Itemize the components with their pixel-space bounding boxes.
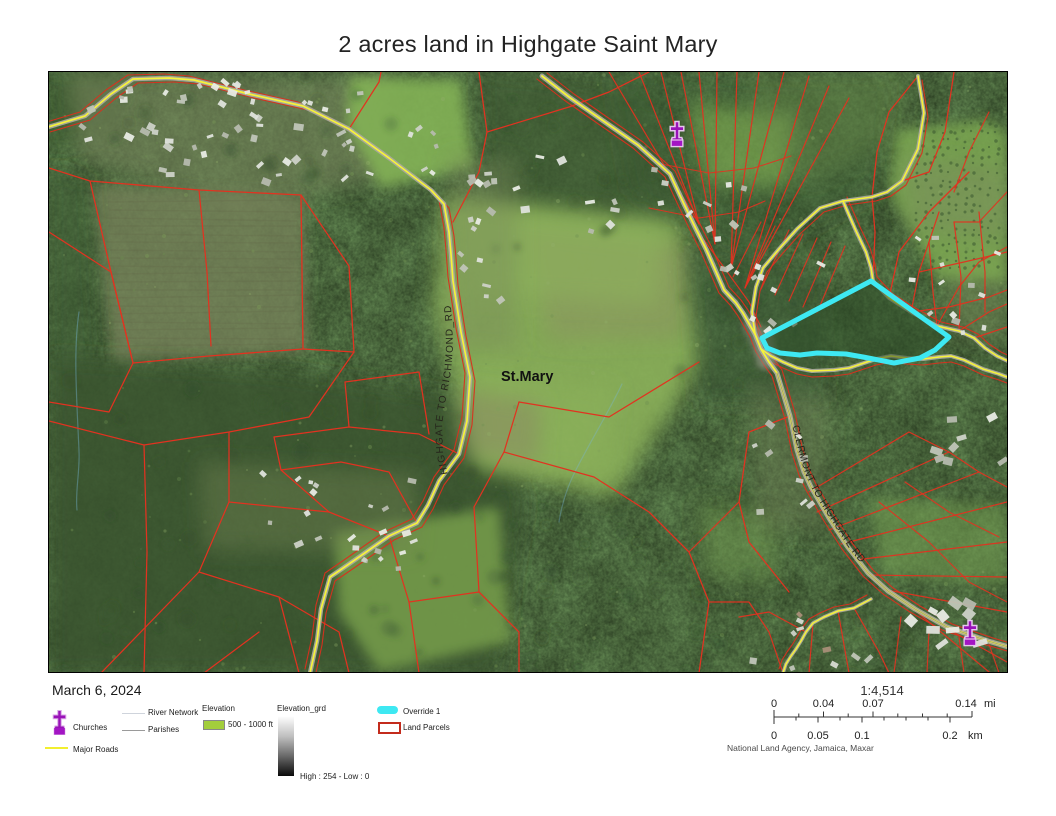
- svg-text:0.04: 0.04: [813, 698, 834, 710]
- svg-text:0.2: 0.2: [942, 730, 957, 742]
- svg-text:0: 0: [771, 698, 777, 710]
- svg-text:St.Mary: St.Mary: [501, 369, 553, 385]
- svg-text:0.14: 0.14: [955, 698, 976, 710]
- svg-text:0.05: 0.05: [807, 730, 828, 742]
- svg-text:km: km: [968, 730, 983, 742]
- svg-text:0.1: 0.1: [854, 730, 869, 742]
- svg-text:mi: mi: [984, 698, 996, 710]
- svg-text:0.07: 0.07: [862, 698, 883, 710]
- svg-text:0: 0: [771, 730, 777, 742]
